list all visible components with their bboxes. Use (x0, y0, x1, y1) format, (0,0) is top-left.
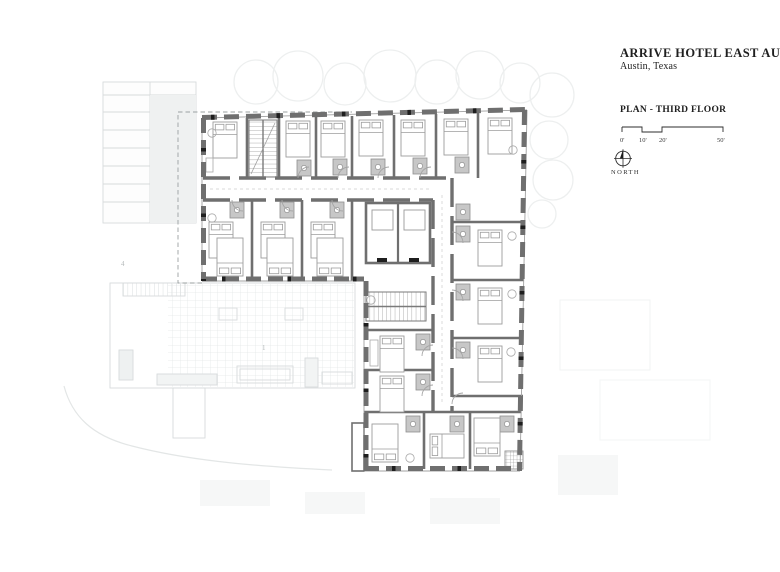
figure-label-deck: 1 (262, 344, 266, 352)
elevator-core (366, 203, 430, 263)
scale-tick-label: 50' (717, 137, 725, 144)
scale-tick-label: 0' (620, 137, 624, 144)
building-bay (352, 423, 364, 471)
neighbor-building (103, 82, 196, 223)
scale-tick-label: 10' (639, 137, 647, 144)
floor-plan-drawing (0, 0, 780, 572)
plan-title: PLAN - THIRD FLOOR (620, 105, 726, 115)
drawing-sheet: 4 1 ARRIVE HOTEL EAST AUSTIN Austin, Tex… (0, 0, 780, 572)
figure-label-neighbor: 4 (121, 260, 125, 268)
site-street-edge (64, 386, 332, 470)
stair-north (249, 120, 277, 177)
north-label: NORTH (611, 169, 640, 176)
project-title: ARRIVE HOTEL EAST AUSTIN (620, 46, 780, 61)
scale-tick-label: 20' (659, 137, 667, 144)
project-location: Austin, Texas (620, 61, 677, 72)
pool-deck (110, 283, 355, 438)
stair-wing (366, 292, 426, 321)
